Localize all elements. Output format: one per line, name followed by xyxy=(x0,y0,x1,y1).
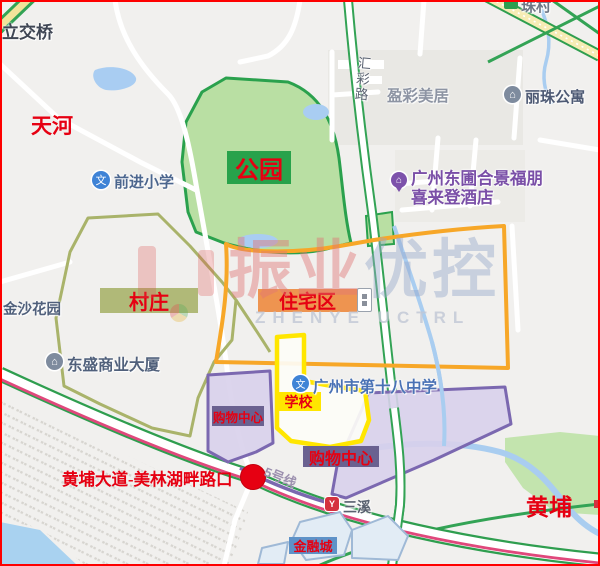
intersection-annotation: 黄埔大道-美林湖畔路口 xyxy=(62,466,233,490)
poi-yingcai[interactable]: 盈彩美居 xyxy=(387,84,449,106)
metro-station-icon: Y xyxy=(325,497,339,511)
building-icon: ⌂ xyxy=(504,86,521,103)
poi-label-line1: 广州东圃合景福朋 xyxy=(411,170,543,189)
poi-sheraton-hotel[interactable]: ⌂ 广州东圃合景福朋 喜来登酒店 xyxy=(391,170,543,208)
poi-label-line2: 喜来登酒店 xyxy=(411,189,543,208)
poi-jinsha-garden[interactable]: 金沙花园 xyxy=(3,298,61,319)
region-label-mall-left: 购物中心 xyxy=(212,406,264,426)
road-label-overpass: 立交桥 xyxy=(2,18,53,43)
poi-label: 东盛商业大厦 xyxy=(67,353,160,375)
metro-station-icon-partial xyxy=(594,500,600,508)
education-icon: 文 xyxy=(92,171,110,189)
poi-sanxi-station[interactable]: Y 三溪 xyxy=(325,497,371,517)
region-label-mall-right: 购物中心 xyxy=(303,446,379,467)
building-icon: ⌂ xyxy=(46,353,63,370)
poi-label: 前进小学 xyxy=(114,171,174,192)
poi-dongsheng-building[interactable]: ⌂ 东盛商业大厦 xyxy=(46,353,160,375)
district-label-tianhe: 天河 xyxy=(31,110,73,140)
region-label-financial: 金融城 xyxy=(289,537,337,554)
region-label-residential: 住宅区 xyxy=(258,289,357,312)
poi-no18-middle-school[interactable]: 文 广州市第十八中学 xyxy=(292,375,437,397)
highway-shield-icon xyxy=(504,0,518,9)
poi-qianjin-school[interactable]: 文 前进小学 xyxy=(92,171,174,192)
poi-lizhu-apartment[interactable]: ⌂ 丽珠公寓 xyxy=(504,86,585,107)
district-label-huangpu: 黄埔 xyxy=(526,488,572,522)
region-label-village: 村庄 xyxy=(100,288,198,313)
poi-label: 三溪 xyxy=(343,497,371,517)
map-canvas[interactable]: 立交桥 珠村 汇彩路 5号线 天河 黄埔 黄埔大道-美林湖畔路口 公园 村庄 住… xyxy=(0,0,600,566)
road-label-huicai: 汇彩路 xyxy=(349,55,373,103)
hotel-pin-icon: ⌂ xyxy=(391,172,407,188)
region-label-park: 公园 xyxy=(227,151,291,184)
road-label-zhucun: 珠村 xyxy=(521,0,551,16)
road-name-badge xyxy=(357,288,372,312)
poi-label: 广州市第十八中学 xyxy=(313,375,437,397)
poi-label: 丽珠公寓 xyxy=(525,86,585,107)
education-icon: 文 xyxy=(292,375,309,392)
